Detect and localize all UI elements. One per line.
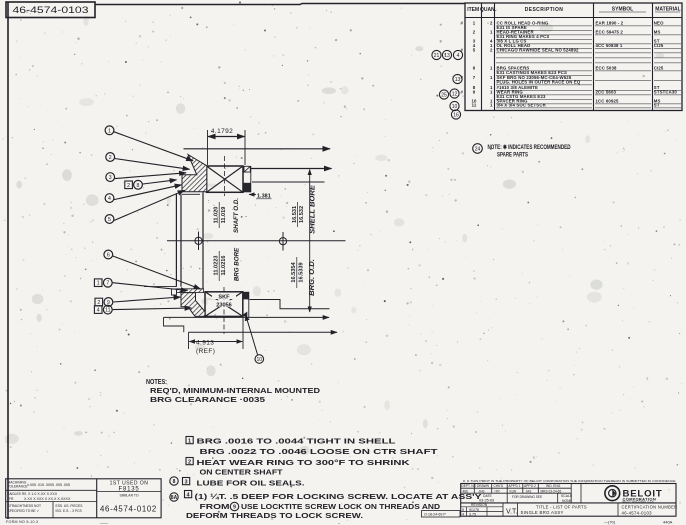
svg-text:4: 4 — [457, 53, 460, 59]
svg-text:ECC 5038: ECC 5038 — [596, 66, 617, 71]
svg-text:8: 8 — [137, 183, 140, 189]
svg-text:NOTE: ✽ INDICATES RECOMMENDE: NOTE: ✽ INDICATES RECOMMENDED — [488, 144, 572, 151]
svg-text:(REF): (REF) — [196, 348, 215, 355]
svg-text:1: 1 — [188, 439, 191, 445]
svg-text:1: 1 — [108, 128, 111, 134]
svg-text:2: 2 — [97, 300, 100, 306]
svg-text:O-18-24-69 P: O-18-24-69 P — [424, 513, 446, 517]
svg-text:3: 3 — [185, 480, 188, 486]
svg-text:1: 1 — [97, 281, 100, 287]
svg-text:4CC 50838 1: 4CC 50838 1 — [596, 43, 623, 48]
svg-text:ISO. E.S. - 3 PCS: ISO. E.S. - 3 PCS — [56, 509, 83, 513]
svg-text:JHS: JHS — [479, 489, 485, 493]
svg-text:466: 466 — [463, 489, 469, 493]
svg-text:SKF: SKF — [218, 295, 230, 301]
svg-text:DATE: DATE — [483, 494, 493, 498]
svg-text:6: 6 — [473, 66, 476, 71]
svg-text:SHELL BORE: SHELL BORE — [308, 184, 317, 234]
svg-text:PLUG. HOLES IN OUTER RACE ON E: PLUG. HOLES IN OUTER RACE ON EQ — [497, 80, 581, 85]
svg-text:DEFORM THREADS TO LOCK SCR: DEFORM THREADS TO LOCK SCREW. — [186, 511, 363, 520]
svg-text:BRG. O.D.: BRG. O.D. — [307, 259, 316, 296]
svg-text:KLW: KLW — [510, 489, 517, 493]
svg-text:440A: 440A — [663, 520, 673, 525]
svg-text:BRG CLEARANCE ·0035: BRG CLEARANCE ·0035 — [150, 395, 265, 404]
svg-text:CERTIFICATION NUMBER: CERTIFICATION NUMBER — [622, 505, 678, 510]
svg-text:11.019: 11.019 — [221, 207, 227, 224]
svg-text:2CC 5603: 2CC 5603 — [596, 90, 617, 95]
svg-text:11: 11 — [105, 308, 110, 314]
svg-text:4.1792: 4.1792 — [211, 128, 233, 135]
svg-text:IND. ENG.: IND. ENG. — [546, 484, 561, 488]
svg-text:11.0216: 11.0216 — [221, 256, 227, 276]
svg-text:11: 11 — [472, 103, 477, 108]
svg-text:HEAT WEAR RING TO 300°F T: HEAT WEAR RING TO 300°F TO SHRINK — [197, 458, 411, 467]
svg-text:46-4574-0102: 46-4574-0102 — [100, 505, 157, 514]
svg-text:BRG .0016 TO .0044 TIGHT I: BRG .0016 TO .0044 TIGHT IN SHELL — [197, 437, 397, 446]
svg-text:DEPT. NO: DEPT. NO — [462, 484, 477, 488]
svg-text:2: 2 — [109, 155, 112, 161]
svg-text:4: 4 — [97, 308, 100, 314]
svg-text:STSTCA30: STSTCA30 — [654, 90, 678, 95]
svg-text:∗ ∗ THIS PRINT IS THE PROPERTY: ∗ ∗ THIS PRINT IS THE PROPERTY OF BELOIT… — [463, 479, 676, 483]
svg-text:APP'D 2: APP'D 2 — [524, 484, 536, 488]
svg-text:21: 21 — [434, 53, 440, 59]
svg-text:12: 12 — [452, 91, 458, 97]
svg-text:—(70): —(70) — [604, 520, 616, 525]
svg-text:2: 2 — [188, 460, 191, 466]
svg-text:5: 5 — [462, 508, 464, 512]
svg-text:5: 5 — [108, 217, 111, 223]
svg-text:ITEM: ITEM — [467, 7, 479, 13]
svg-text:NONE: NONE — [562, 499, 573, 503]
svg-text:X 1.0 X.XX X.XXX: X 1.0 X.XX X.XXX — [28, 492, 58, 496]
svg-text:2: 2 — [127, 183, 130, 189]
svg-text:ST: ST — [654, 103, 660, 108]
svg-text:FOR DRAWING SEE: FOR DRAWING SEE — [512, 495, 542, 499]
svg-text:MRS 03-24-65: MRS 03-24-65 — [541, 489, 562, 493]
svg-text:ANGLES RS.: ANGLES RS. — [8, 492, 28, 496]
svg-text:±.005 .015 .0005 .005 .005: ±.005 .015 .0005 .005 .005 — [27, 483, 70, 487]
svg-text:23056: 23056 — [216, 302, 232, 308]
svg-text:CI25: CI25 — [654, 66, 664, 71]
svg-text:5: 5 — [473, 48, 476, 53]
svg-text:3: 3 — [109, 175, 112, 181]
svg-text:ECC 59475 2: ECC 59475 2 — [596, 30, 624, 35]
svg-text:FROM: FROM — [200, 502, 230, 511]
svg-text:10: 10 — [452, 104, 458, 110]
svg-text:4: 4 — [462, 513, 464, 517]
svg-text:X.XX X XXX X XX.X X.XXXX: X.XX X XXX X XX.X X.XXXX — [24, 497, 71, 501]
svg-text:BELOIT, WISCONSIN, U.S.A.: BELOIT, WISCONSIN, U.S.A. — [623, 501, 655, 504]
svg-text:ITR: ITR — [495, 489, 501, 493]
svg-text:CHK'D: CHK'D — [494, 484, 504, 488]
svg-text:STRAIGHTNESS NOT: STRAIGHTNESS NOT — [8, 504, 42, 508]
svg-text:FORM NO 5-10.3: FORM NO 5-10.3 — [6, 520, 38, 524]
svg-text:16.5354: 16.5354 — [291, 262, 297, 283]
svg-text:DESCRIPTION: DESCRIPTION — [525, 7, 564, 13]
svg-text:1: 1 — [473, 21, 476, 26]
svg-text:(1) ¼T. .5 DEEP FOR LOCKING: (1) ¼T. .5 DEEP FOR LOCKING SCREW. LOCAT… — [195, 492, 482, 501]
svg-text:CHICAGO RAWHIDE SEAL NO 524892: CHICAGO RAWHIDE SEAL NO 524892 — [497, 48, 579, 53]
svg-text:9/1/76: 9/1/76 — [469, 508, 479, 512]
svg-text:16.5339: 16.5339 — [298, 262, 304, 282]
svg-text:SCALE: SCALE — [561, 494, 573, 498]
svg-text:16: 16 — [453, 112, 459, 118]
svg-text:FR: FR — [9, 497, 14, 501]
svg-text:SINGLE BRG ASSY: SINGLE BRG ASSY — [521, 510, 564, 515]
svg-text:TOLERANCE: TOLERANCE — [8, 485, 29, 489]
svg-text:24: 24 — [475, 146, 481, 152]
svg-text:6: 6 — [107, 253, 110, 259]
svg-text:JAS: JAS — [526, 489, 532, 493]
svg-text:3/4 X 3/4 SOC SETSCR: 3/4 X 3/4 SOC SETSCR — [497, 103, 547, 108]
svg-text:NOTES:: NOTES: — [146, 377, 167, 386]
svg-text:REVISION: REVISION — [471, 503, 488, 507]
svg-text:NEO: NEO — [654, 21, 664, 26]
svg-text:MS: MS — [654, 30, 661, 35]
svg-text:13: 13 — [455, 77, 461, 83]
svg-text:8: 8 — [173, 479, 176, 485]
svg-text:DRAWN: DRAWN — [477, 484, 490, 488]
svg-text:USE LOCKTITE SCREW LOCK ON: USE LOCKTITE SCREW LOCK ON THREADS AND — [241, 502, 441, 511]
svg-text:SPARE PARTS: SPARE PARTS — [497, 153, 528, 159]
svg-text:ESS. US. PIECES: ESS. US. PIECES — [56, 504, 84, 508]
svg-text:03-25-69: 03-25-69 — [479, 499, 494, 503]
svg-text:7: 7 — [106, 281, 109, 287]
svg-text:APP'D 1: APP'D 1 — [509, 484, 521, 488]
svg-text:25: 25 — [441, 92, 447, 98]
svg-text:F8135: F8135 — [118, 487, 139, 493]
svg-text:9: 9 — [473, 90, 476, 95]
svg-text:——: —— — [100, 521, 108, 525]
svg-text:ON CENTER SHAFT: ON CENTER SHAFT — [200, 468, 283, 477]
svg-text:11.020: 11.020 — [214, 207, 220, 224]
svg-text:MATERIAL: MATERIAL — [655, 7, 680, 13]
svg-text:8A: 8A — [171, 495, 178, 501]
svg-text:2: 2 — [473, 30, 476, 35]
svg-text:SIMILAR TO: SIMILAR TO — [119, 494, 138, 498]
svg-text:QUAN.: QUAN. — [480, 7, 497, 13]
svg-text:REQ'D, MINIMUM-INTERNAL MOUNTE: REQ'D, MINIMUM-INTERNAL MOUNTED — [150, 386, 321, 395]
svg-text:3.75: 3.75 — [469, 513, 476, 517]
svg-text:16.531: 16.531 — [292, 206, 298, 223]
svg-text:7: 7 — [473, 75, 476, 80]
svg-text:46-4574-0103: 46-4574-0103 — [13, 5, 89, 15]
svg-text:LUBE FOR OIL SEALS.: LUBE FOR OIL SEALS. — [197, 479, 305, 488]
svg-text:BRG BORE: BRG BORE — [234, 247, 241, 281]
svg-text:16.532: 16.532 — [299, 206, 305, 223]
svg-text:CI25: CI25 — [654, 43, 664, 48]
svg-text:1CC 60925: 1CC 60925 — [596, 99, 620, 104]
svg-text:10: 10 — [257, 357, 263, 363]
svg-text:EAR 1890 - 2: EAR 1890 - 2 — [596, 21, 624, 26]
svg-text:4: 4 — [108, 196, 111, 202]
svg-text:SHAFT O.D.: SHAFT O.D. — [233, 198, 240, 233]
svg-text:4.913: 4.913 — [196, 340, 214, 347]
svg-text:SPECIFIED TO BE ✓: SPECIFIED TO BE ✓ — [8, 509, 40, 513]
svg-text:46-4574-0103: 46-4574-0103 — [622, 510, 653, 515]
svg-text:V.T.: V.T. — [506, 509, 517, 516]
svg-text:13: 13 — [444, 53, 450, 59]
svg-text:SYMBOL: SYMBOL — [612, 7, 633, 13]
svg-text:BRG .0022 TO .0046 LOOSE: BRG .0022 TO .0046 LOOSE ON CTR SHAFT — [200, 447, 439, 456]
svg-text:11.0223: 11.0223 — [214, 256, 220, 276]
svg-text:9: 9 — [233, 505, 236, 511]
svg-text:TITLE - LIST OF PARTS: TITLE - LIST OF PARTS — [536, 505, 587, 510]
